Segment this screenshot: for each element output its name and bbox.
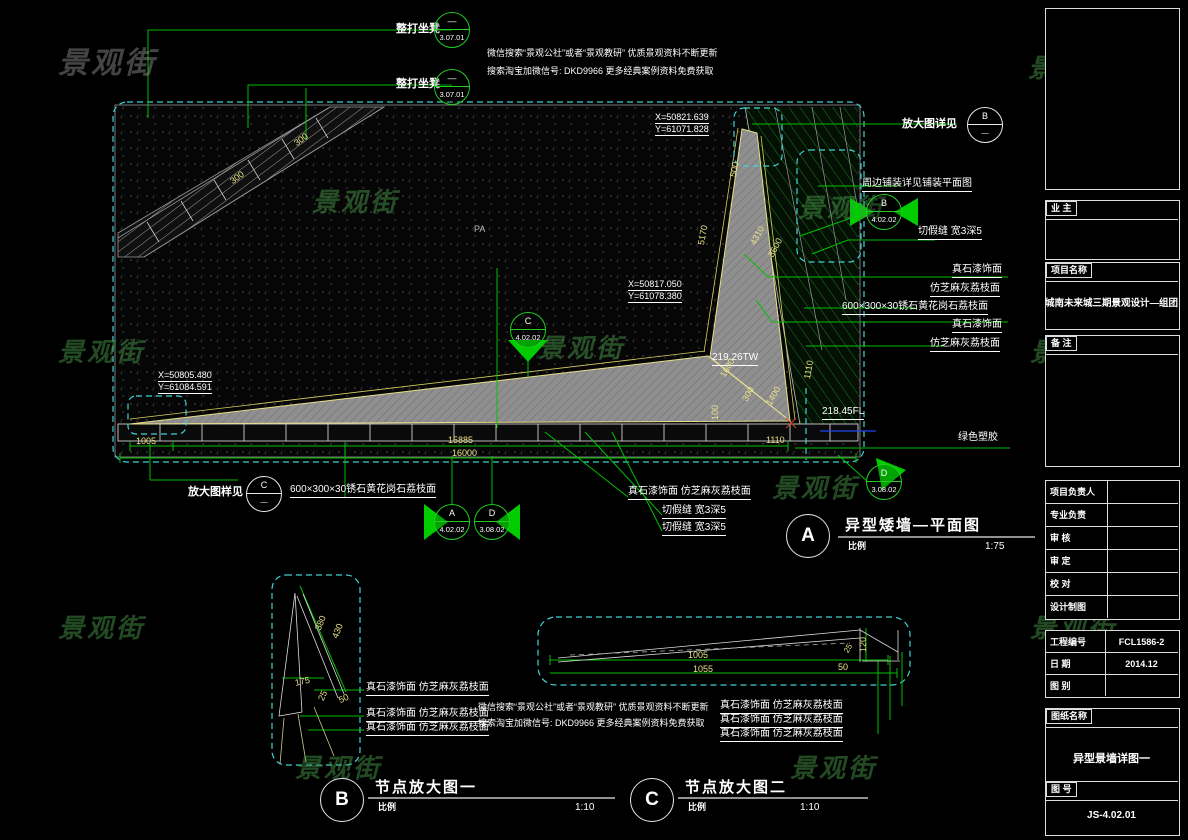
divider: [1045, 727, 1178, 728]
coordinate-x: X=50817.050: [628, 279, 682, 291]
titleblock-staff-box: [1045, 480, 1180, 620]
project-name-label: 项目名称: [1046, 263, 1092, 278]
joint-note: 切假缝 宽3深5: [662, 522, 726, 536]
green-rubber-label: 绿色塑胶: [958, 432, 998, 444]
watermark: 景观街: [538, 328, 625, 365]
section-marker-a: A 4.02.02: [434, 504, 470, 540]
coordinate-x: X=50805.480: [158, 370, 212, 382]
coordinate-y: Y=61078.380: [628, 291, 682, 303]
level-fl: 218.45FL: [822, 406, 864, 420]
project-no-value: FCL1586-2: [1105, 637, 1178, 647]
sheet-name: 异型景墙详图一: [1045, 750, 1178, 766]
staff-row-label: 专业负责: [1050, 510, 1086, 520]
divider: [1045, 674, 1178, 675]
finish-granite: 600×300×30锈石黄花岗石荔枝面: [290, 484, 436, 498]
divider: [1045, 219, 1178, 220]
staff-row-label: 设计制图: [1050, 602, 1086, 612]
dim-16000: 16000: [452, 448, 477, 458]
plan-scale-label: 比例: [848, 541, 866, 551]
enlarged-view-label: 放大图样见: [188, 486, 243, 499]
divider: [1045, 572, 1178, 573]
section-marker-d: D 3.08.02: [474, 504, 510, 540]
divider: [1045, 354, 1178, 355]
date-label: 日 期: [1050, 659, 1071, 669]
date-value: 2014.12: [1105, 659, 1178, 669]
enlarged-view-bubble-c: C —: [246, 476, 282, 512]
note-line-1: 微信搜索“景观公社”或者“景观教研” 优质景观资料不断更新: [478, 702, 709, 712]
detail-c-scale-value: 1:10: [800, 802, 819, 814]
staff-row-label: 审 定: [1050, 556, 1071, 566]
owner-label: 业 主: [1046, 201, 1077, 216]
section-marker-c: C 4.02.02: [510, 312, 546, 348]
plan-title-bubble: A: [786, 514, 830, 558]
detail-annotation: 真石漆饰面 仿芝麻灰荔枝面: [366, 682, 489, 696]
staff-row-label: 审 核: [1050, 533, 1071, 543]
paving-note: 周边铺装详见铺装平面图: [862, 178, 972, 192]
watermark: 景观街: [58, 38, 157, 82]
finish-stone-paint: 真石漆饰面: [952, 264, 1002, 278]
enlarged-view-bubble-b: B —: [967, 107, 1003, 143]
staff-row-label: 校 对: [1050, 579, 1071, 589]
project-no-label: 工程编号: [1050, 637, 1086, 647]
ref-bubble-3-07-01: — 3.07.01: [434, 69, 470, 105]
pa-label: PA: [474, 224, 485, 234]
finish-granite: 600×300×30锈石黄花岗石荔枝面: [842, 301, 988, 315]
watermark: 景观街: [58, 332, 145, 369]
divider: [1045, 800, 1178, 801]
sheet-no: JS-4.02.01: [1045, 810, 1178, 821]
coordinate-x: X=50821.639: [655, 112, 709, 124]
detail-b-scale-label: 比例: [378, 802, 396, 812]
cad-linework: [0, 0, 1188, 840]
detail-c-scale-label: 比例: [688, 802, 706, 812]
detail-annotation: 真石漆饰面 仿芝麻灰荔枝面: [366, 722, 489, 736]
watermark: 景观街: [58, 608, 145, 645]
detail-c-title: 节点放大图二: [685, 779, 787, 796]
finish-stone-paint: 真石漆饰面: [952, 319, 1002, 333]
section-marker-b: B 4.02.02: [866, 194, 902, 230]
detail-annotation: 真石漆饰面 仿芝麻灰荔枝面: [720, 728, 843, 742]
finish-litchi: 仿芝麻灰荔枝面: [930, 338, 1000, 352]
divider: [1045, 652, 1178, 653]
enlarged-view-label: 放大图详见: [902, 118, 957, 131]
dim-15885: 15885: [448, 435, 473, 445]
joint-note: 切假缝 宽3深5: [918, 226, 982, 240]
divider: [1045, 281, 1178, 282]
staff-row-label: 项目负责人: [1050, 487, 1095, 497]
watermark: 景观街: [312, 182, 399, 219]
divider: [1045, 549, 1178, 550]
detail-b-scale-value: 1:10: [575, 802, 594, 814]
plan-title: 异型矮墙—平面图: [845, 517, 981, 534]
coordinate-y: Y=61084.591: [158, 382, 212, 394]
note-line-2: 搜索淘宝加微信号: DKD9966 更多经典案例资料免费获取: [487, 66, 714, 76]
cad-sheet: 景观街 景观街 景观街 景观街 景观街 景观街 景观街 景观街 景观街 景观街 …: [0, 0, 1188, 840]
sheet-no-label: 图 号: [1046, 782, 1077, 797]
project-name: 城南未来城三期景观设计—组团: [1045, 295, 1178, 309]
ref-bubble-3-07-01: — 3.07.01: [434, 12, 470, 48]
detail-annotation: 真石漆饰面 仿芝麻灰荔枝面: [366, 708, 489, 722]
watermark: 景观街: [772, 468, 859, 505]
detail-annotation: 真石漆饰面 仿芝麻灰荔枝面: [720, 700, 843, 714]
titleblock-logo-box: [1045, 8, 1180, 190]
sheet-name-label: 图纸名称: [1046, 709, 1092, 724]
sheet-type-label: 图 别: [1050, 681, 1071, 691]
dim-1005: 1005: [136, 436, 156, 446]
divider: [1045, 595, 1178, 596]
remarks-label: 备 注: [1046, 336, 1077, 351]
plan-scale-value: 1:75: [985, 541, 1004, 553]
base-strip: [118, 424, 858, 441]
dim-1110: 1110: [766, 435, 785, 445]
watermark: 景观街: [790, 748, 877, 785]
finish-combo: 真石漆饰面 仿芝麻灰荔枝面: [628, 486, 751, 500]
detail-b-title-bubble: B: [320, 778, 364, 822]
note-line-2: 搜索淘宝加微信号: DKD9966 更多经典案例资料免费获取: [478, 718, 705, 728]
detail-b-title: 节点放大图一: [375, 779, 477, 796]
dim-1005: 1005: [688, 650, 708, 660]
detail-annotation: 真石漆饰面 仿芝麻灰荔枝面: [720, 714, 843, 728]
joint-note: 切假缝 宽3深5: [662, 505, 726, 519]
coordinate-y: Y=61071.828: [655, 124, 709, 136]
divider: [1045, 526, 1178, 527]
ref-top: —: [435, 13, 469, 30]
note-line-1: 微信搜索“景观公社”或者“景观教研” 优质景观资料不断更新: [487, 48, 718, 58]
dim-50: 50: [838, 662, 848, 672]
section-marker-d: D 3.08.02: [866, 464, 902, 500]
finish-litchi: 仿芝麻灰荔枝面: [930, 283, 1000, 297]
divider: [1045, 503, 1178, 504]
dim-100: 100: [710, 405, 720, 420]
dim-1055: 1055: [693, 664, 713, 674]
ref-bottom: 3.07.01: [435, 30, 469, 45]
detail-c-title-bubble: C: [630, 778, 674, 822]
dim-120: 120: [858, 637, 868, 652]
